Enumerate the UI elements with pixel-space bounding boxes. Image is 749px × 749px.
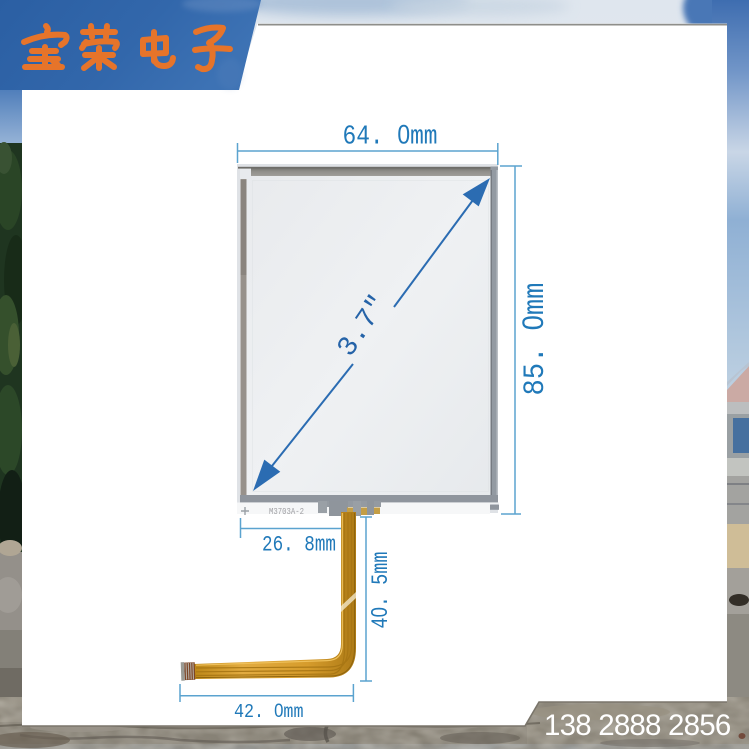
svg-text:42. 0mm: 42. 0mm bbox=[234, 701, 304, 723]
svg-text:26. 8mm: 26. 8mm bbox=[262, 532, 336, 558]
svg-text:64. 0mm: 64. 0mm bbox=[343, 120, 438, 153]
svg-text:M3703A-2: M3703A-2 bbox=[269, 507, 304, 517]
svg-text:138 2888 2856: 138 2888 2856 bbox=[544, 709, 731, 742]
svg-text:85. 0mm: 85. 0mm bbox=[517, 283, 553, 396]
svg-text:40. 5mm: 40. 5mm bbox=[366, 552, 394, 629]
